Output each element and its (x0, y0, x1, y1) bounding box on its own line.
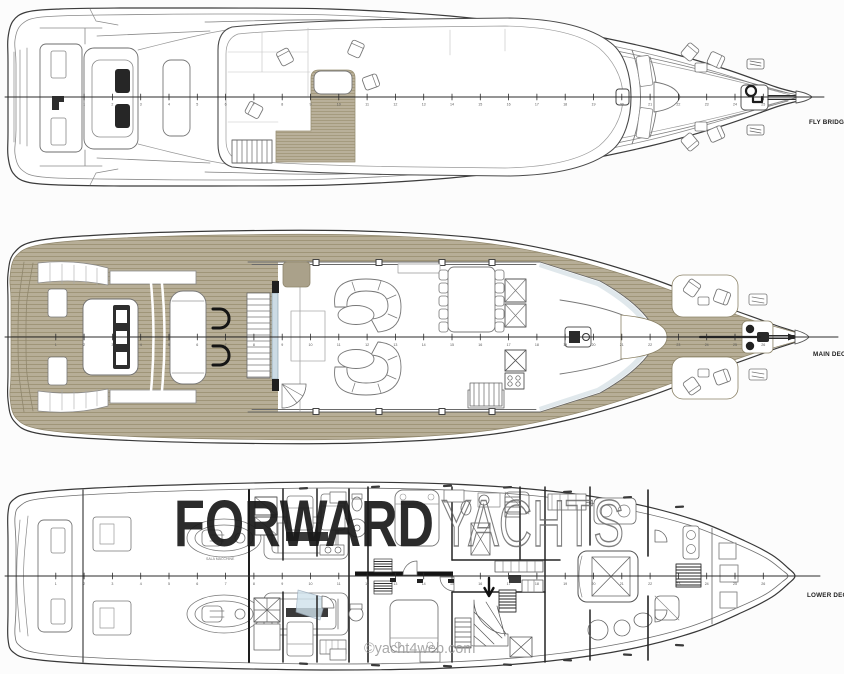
svg-text:8: 8 (281, 103, 283, 107)
svg-text:17: 17 (507, 582, 511, 586)
svg-text:11: 11 (337, 343, 341, 347)
svg-text:16: 16 (507, 103, 511, 107)
svg-text:2: 2 (83, 343, 85, 347)
svg-text:13: 13 (393, 343, 397, 347)
svg-text:©yacht4web.com: ©yacht4web.com (364, 641, 475, 657)
svg-text:8: 8 (253, 343, 255, 347)
svg-text:6: 6 (225, 103, 227, 107)
svg-text:12: 12 (365, 343, 369, 347)
svg-text:7: 7 (253, 103, 255, 107)
svg-text:5: 5 (168, 343, 170, 347)
svg-text:23: 23 (676, 343, 680, 347)
svg-text:FORWARD: FORWARD (174, 486, 434, 560)
svg-text:1: 1 (55, 582, 57, 586)
svg-text:18: 18 (563, 103, 567, 107)
svg-text:11: 11 (365, 103, 369, 107)
svg-text:LOWER DECK: LOWER DECK (807, 592, 844, 599)
svg-text:YACHTS: YACHTS (441, 486, 624, 560)
svg-text:FLY BRIDGE: FLY BRIDGE (809, 119, 844, 126)
svg-text:26: 26 (761, 582, 765, 586)
svg-text:22: 22 (676, 103, 680, 107)
svg-text:16: 16 (478, 343, 482, 347)
svg-text:2: 2 (83, 582, 85, 586)
svg-text:12: 12 (365, 582, 369, 586)
svg-text:12: 12 (393, 103, 397, 107)
svg-text:18: 18 (535, 343, 539, 347)
svg-text:4: 4 (168, 103, 170, 107)
svg-text:2: 2 (111, 103, 113, 107)
svg-text:5: 5 (196, 103, 198, 107)
svg-text:19: 19 (592, 103, 596, 107)
svg-text:10: 10 (309, 582, 313, 586)
svg-text:26: 26 (761, 343, 765, 347)
svg-text:20: 20 (592, 582, 596, 586)
svg-text:20: 20 (620, 103, 624, 107)
svg-text:11: 11 (337, 582, 341, 586)
svg-text:9: 9 (310, 103, 312, 107)
svg-text:3: 3 (140, 103, 142, 107)
svg-text:23: 23 (705, 103, 709, 107)
svg-text:23: 23 (676, 582, 680, 586)
svg-text:7: 7 (225, 582, 227, 586)
svg-text:MAIN DECK: MAIN DECK (813, 351, 844, 358)
svg-text:3: 3 (111, 343, 113, 347)
svg-text:4: 4 (140, 582, 142, 586)
svg-text:17: 17 (507, 343, 511, 347)
svg-text:15: 15 (450, 343, 454, 347)
svg-text:9: 9 (281, 582, 283, 586)
svg-text:24: 24 (733, 103, 737, 107)
svg-text:6: 6 (196, 582, 198, 586)
svg-text:25: 25 (761, 103, 765, 107)
svg-text:20: 20 (592, 343, 596, 347)
svg-text:18: 18 (535, 582, 539, 586)
svg-text:14: 14 (422, 582, 426, 586)
svg-text:22: 22 (648, 582, 652, 586)
svg-text:25: 25 (733, 582, 737, 586)
svg-text:14: 14 (422, 343, 426, 347)
svg-text:21: 21 (620, 343, 624, 347)
svg-text:5: 5 (168, 582, 170, 586)
svg-text:19: 19 (563, 343, 567, 347)
svg-text:13: 13 (393, 582, 397, 586)
svg-text:22: 22 (648, 343, 652, 347)
svg-text:8: 8 (253, 582, 255, 586)
svg-text:15: 15 (450, 582, 454, 586)
svg-text:24: 24 (705, 582, 709, 586)
svg-text:9: 9 (281, 343, 283, 347)
svg-text:6: 6 (196, 343, 198, 347)
svg-text:10: 10 (337, 103, 341, 107)
svg-text:15: 15 (478, 103, 482, 107)
svg-text:24: 24 (705, 343, 709, 347)
svg-text:10: 10 (309, 343, 313, 347)
svg-text:17: 17 (535, 103, 539, 107)
svg-text:4: 4 (140, 343, 142, 347)
svg-text:3: 3 (111, 582, 113, 586)
svg-text:14: 14 (450, 103, 454, 107)
svg-text:1: 1 (83, 103, 85, 107)
svg-text:1: 1 (55, 343, 57, 347)
svg-text:16: 16 (478, 582, 482, 586)
svg-text:13: 13 (422, 103, 426, 107)
svg-text:19: 19 (563, 582, 567, 586)
svg-text:21: 21 (620, 582, 624, 586)
svg-text:7: 7 (225, 343, 227, 347)
svg-text:25: 25 (733, 343, 737, 347)
svg-text:21: 21 (648, 103, 652, 107)
